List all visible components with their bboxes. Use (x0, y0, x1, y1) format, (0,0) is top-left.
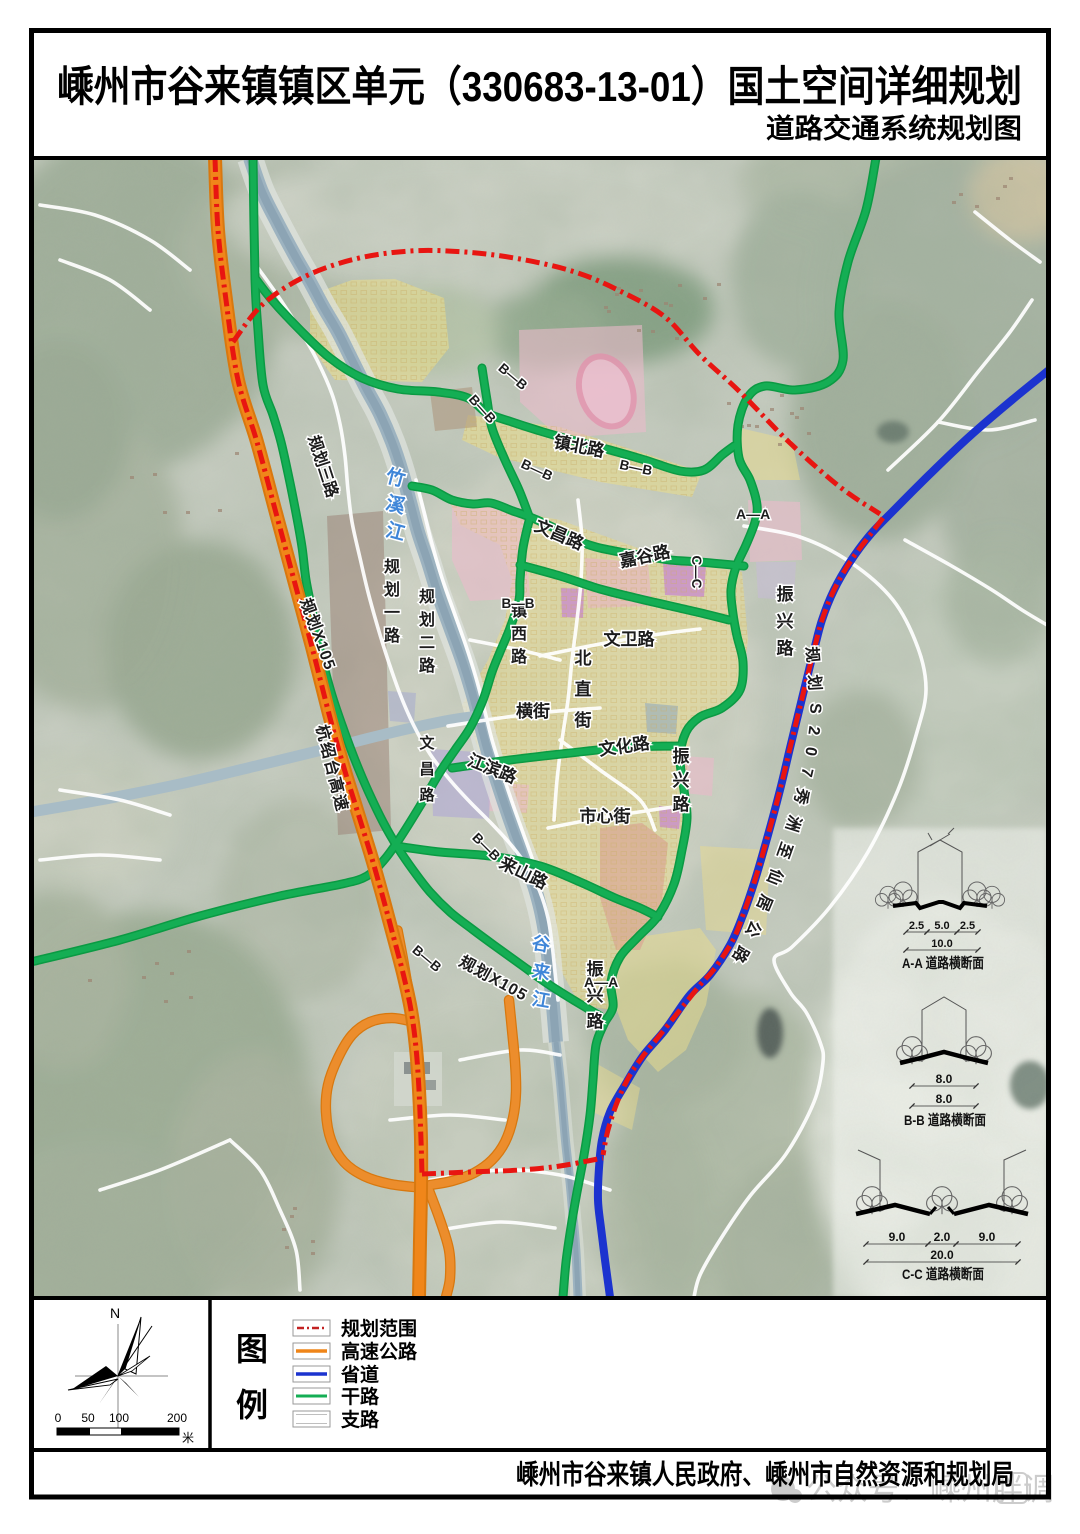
svg-text:规: 规 (384, 558, 400, 576)
svg-text:横街: 横街 (516, 701, 550, 721)
svg-text:B—B: B—B (502, 596, 535, 611)
svg-text:B-B 道路横断面: B-B 道路横断面 (904, 1112, 986, 1128)
svg-text:北: 北 (575, 649, 592, 668)
svg-text:兴: 兴 (673, 771, 690, 790)
svg-text:干路: 干路 (341, 1385, 380, 1408)
svg-text:一: 一 (384, 605, 400, 622)
svg-text:规: 规 (419, 588, 435, 606)
svg-text:A—A: A—A (736, 506, 770, 522)
svg-text:路: 路 (587, 1011, 605, 1031)
svg-text:9.0: 9.0 (889, 1230, 906, 1244)
svg-text:2.5: 2.5 (909, 920, 924, 932)
svg-text:米: 米 (182, 1431, 194, 1445)
svg-text:路: 路 (419, 656, 436, 675)
svg-text:高速公路: 高速公路 (341, 1340, 418, 1363)
svg-text:兴: 兴 (777, 612, 794, 631)
svg-text:C-C 道路横断面: C-C 道路横断面 (902, 1266, 984, 1282)
svg-text:道路交通系统规划图: 道路交通系统规划图 (766, 113, 1022, 144)
svg-text:文: 文 (419, 734, 435, 752)
svg-text:8.0: 8.0 (936, 1092, 953, 1106)
svg-text:划: 划 (419, 610, 435, 629)
svg-text:50: 50 (81, 1411, 95, 1425)
svg-text:N: N (110, 1305, 120, 1321)
svg-text:路: 路 (384, 626, 401, 645)
svg-text:划: 划 (384, 580, 400, 599)
svg-text:例: 例 (236, 1387, 268, 1423)
svg-text:嵊州市谷来镇镇区单元（330683-13-01）国土空间详细: 嵊州市谷来镇镇区单元（330683-13-01）国土空间详细规划 (57, 63, 1022, 110)
svg-text:市心街: 市心街 (580, 806, 631, 826)
svg-text:0: 0 (55, 1411, 62, 1425)
svg-text:20.0: 20.0 (930, 1248, 954, 1262)
svg-text:振: 振 (777, 584, 794, 604)
svg-text:A-A 道路横断面: A-A 道路横断面 (902, 955, 984, 971)
svg-text:省道: 省道 (340, 1363, 379, 1386)
svg-text:图: 图 (236, 1331, 268, 1367)
svg-text:100: 100 (109, 1411, 129, 1425)
svg-text:8.0: 8.0 (936, 1072, 953, 1086)
svg-text:2.5: 2.5 (960, 920, 975, 932)
svg-text:路: 路 (777, 638, 795, 658)
svg-text:A—A: A—A (584, 974, 618, 990)
svg-text:2.0: 2.0 (934, 1230, 951, 1244)
svg-text:C—C: C—C (689, 556, 704, 589)
svg-text:江: 江 (530, 989, 551, 1012)
svg-text:嵊州市谷来镇人民政府、嵊州市自然资源和规划局: 嵊州市谷来镇人民政府、嵊州市自然资源和规划局 (516, 1459, 1014, 1490)
svg-text:文卫路: 文卫路 (604, 629, 656, 649)
svg-text:街: 街 (574, 710, 592, 730)
svg-text:支路: 支路 (340, 1408, 380, 1431)
svg-text:规划范围: 规划范围 (341, 1317, 417, 1340)
svg-text:10.0: 10.0 (931, 938, 952, 950)
svg-text:西: 西 (511, 625, 527, 643)
svg-text:5.0: 5.0 (934, 920, 949, 932)
svg-text:200: 200 (167, 1411, 187, 1425)
svg-text:直: 直 (575, 679, 592, 699)
svg-text:二: 二 (419, 635, 435, 652)
svg-text:路: 路 (511, 647, 528, 666)
svg-text:路: 路 (673, 794, 691, 814)
svg-text:昌: 昌 (419, 761, 434, 778)
svg-text:9.0: 9.0 (979, 1230, 996, 1244)
svg-text:振: 振 (673, 746, 690, 766)
svg-text:路: 路 (419, 786, 435, 804)
